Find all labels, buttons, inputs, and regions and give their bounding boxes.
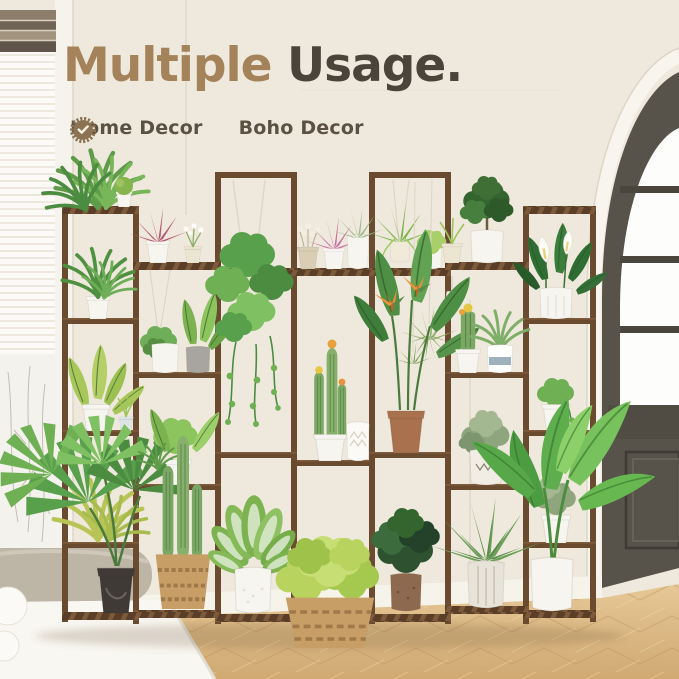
product-photo: Multiple Usage. Home Decor Boho Decor <box>0 0 679 679</box>
badge-label: Boho Decor <box>239 117 364 139</box>
blinds-valance <box>0 10 56 52</box>
headline: Multiple Usage. <box>63 38 462 93</box>
seal-check-icon <box>70 117 96 143</box>
plant-moss-ball-pot <box>115 177 133 207</box>
headline-rest: Usage. <box>287 38 462 93</box>
feature-badges: Home Decor Boho Decor <box>70 117 364 139</box>
headline-highlight: Multiple <box>63 38 272 93</box>
badge-boho-decor: Boho Decor <box>239 117 364 139</box>
window-shade <box>0 52 55 354</box>
room-scene <box>0 0 679 679</box>
